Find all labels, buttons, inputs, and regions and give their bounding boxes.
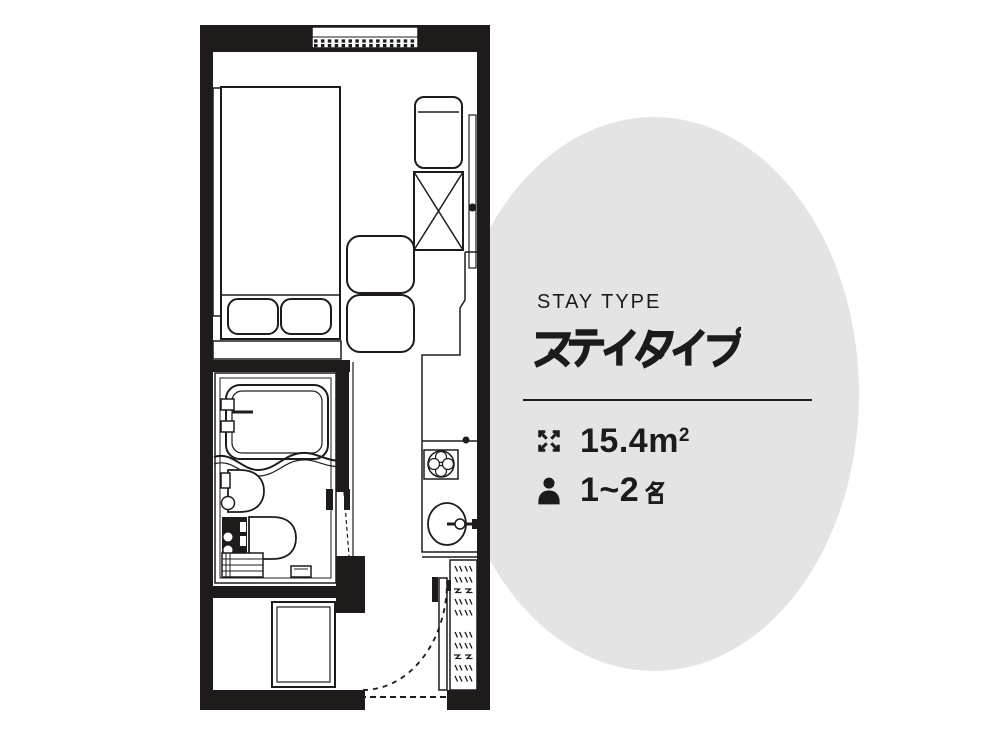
bath-faucet <box>221 421 234 432</box>
armchair <box>415 97 462 168</box>
floor-plan-drawing <box>200 25 490 710</box>
floor-plan <box>0 0 1000 750</box>
doormat <box>272 602 335 687</box>
sliding-window <box>469 115 477 268</box>
pillow <box>281 299 331 334</box>
cabinet-knob <box>463 437 470 444</box>
bathtub <box>221 385 328 459</box>
bench-shelf <box>213 341 341 359</box>
stove-burner <box>424 450 458 479</box>
bed <box>213 87 341 359</box>
pillow <box>228 299 278 334</box>
door-leaf <box>439 578 447 690</box>
floor-cushion <box>347 236 414 293</box>
shoe-cabinet <box>450 560 477 690</box>
bathroom-unit <box>214 362 353 597</box>
door-hinge <box>432 577 438 602</box>
door-opening-floor <box>365 690 447 710</box>
bath-mat <box>291 566 311 577</box>
bath-step <box>222 553 263 577</box>
luggage-rack-x <box>414 172 463 250</box>
floor-cushion <box>347 295 414 352</box>
washbasin <box>221 470 264 512</box>
screenshot-root: STAY TYPE <box>0 0 1000 750</box>
bath-faucet <box>221 399 234 410</box>
window <box>312 27 418 48</box>
headboard <box>213 88 221 316</box>
gray-ellipse-background <box>449 117 859 671</box>
